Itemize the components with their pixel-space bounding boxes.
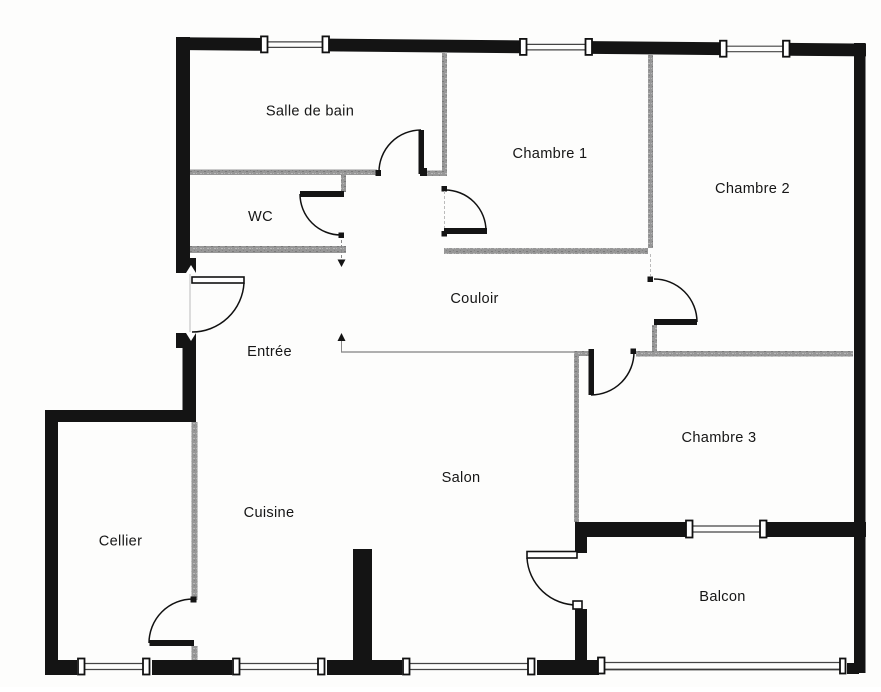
svg-text:Entrée: Entrée — [247, 344, 292, 360]
svg-text:Couloir: Couloir — [450, 291, 498, 307]
svg-text:WC: WC — [248, 209, 273, 225]
svg-text:Salle de bain: Salle de bain — [266, 104, 354, 120]
svg-text:Balcon: Balcon — [699, 589, 745, 605]
svg-text:Chambre 2: Chambre 2 — [715, 181, 790, 197]
svg-text:Cuisine: Cuisine — [244, 505, 295, 521]
svg-text:Cellier: Cellier — [99, 534, 142, 550]
svg-text:Chambre 3: Chambre 3 — [682, 430, 757, 446]
svg-text:Chambre 1: Chambre 1 — [513, 146, 588, 162]
svg-text:Salon: Salon — [442, 470, 481, 486]
